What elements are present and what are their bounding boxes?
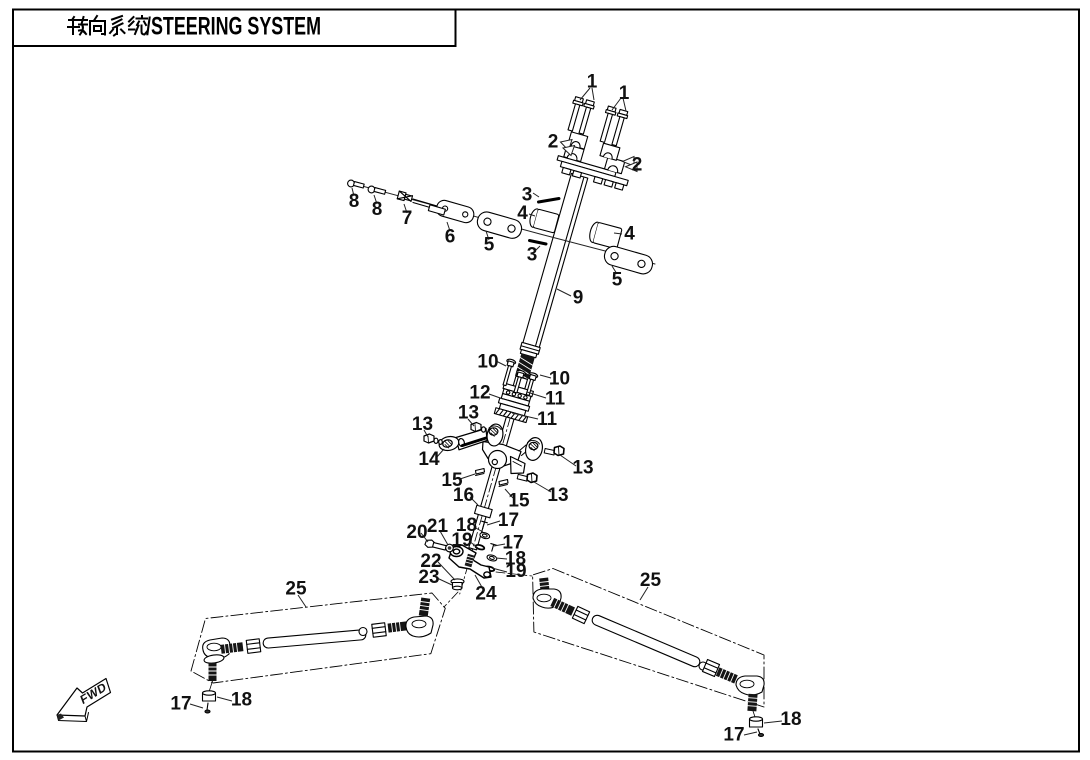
svg-text:24: 24 xyxy=(475,584,497,605)
svg-text:15: 15 xyxy=(508,491,530,512)
svg-text:25: 25 xyxy=(640,570,662,591)
svg-text:17: 17 xyxy=(723,724,744,745)
svg-text:4: 4 xyxy=(517,203,528,224)
svg-text:13: 13 xyxy=(547,485,568,506)
svg-text:4: 4 xyxy=(624,224,635,245)
svg-text:16: 16 xyxy=(453,485,474,506)
svg-text:9: 9 xyxy=(573,288,584,309)
svg-text:13: 13 xyxy=(412,414,433,435)
svg-text:8: 8 xyxy=(349,191,360,212)
svg-text:13: 13 xyxy=(458,403,479,424)
svg-text:6: 6 xyxy=(445,227,456,248)
svg-text:13: 13 xyxy=(572,458,593,479)
svg-text:2: 2 xyxy=(548,132,559,153)
svg-text:14: 14 xyxy=(418,449,440,470)
svg-text:17: 17 xyxy=(170,693,191,714)
svg-text:10: 10 xyxy=(477,352,498,373)
svg-text:25: 25 xyxy=(285,579,307,600)
svg-text:11: 11 xyxy=(537,409,558,430)
svg-text:3: 3 xyxy=(527,245,538,266)
svg-text:11: 11 xyxy=(545,389,566,410)
svg-text:1: 1 xyxy=(619,83,630,104)
svg-text:19: 19 xyxy=(451,530,472,551)
svg-text:18: 18 xyxy=(231,690,252,711)
svg-text:19: 19 xyxy=(505,561,526,582)
svg-text:8: 8 xyxy=(372,199,383,220)
svg-text:21: 21 xyxy=(427,516,449,537)
svg-text:5: 5 xyxy=(612,270,623,291)
svg-text:18: 18 xyxy=(780,709,801,730)
svg-text:1: 1 xyxy=(587,72,598,93)
svg-text:7: 7 xyxy=(402,208,413,229)
svg-text:2: 2 xyxy=(632,155,643,176)
svg-text:17: 17 xyxy=(498,510,519,531)
svg-text:20: 20 xyxy=(406,522,427,543)
svg-text:10: 10 xyxy=(549,369,570,390)
svg-text:12: 12 xyxy=(469,383,490,404)
svg-text:23: 23 xyxy=(418,567,439,588)
svg-text:5: 5 xyxy=(484,235,495,256)
svg-text:/STEERING SYSTEM: /STEERING SYSTEM xyxy=(146,13,321,41)
